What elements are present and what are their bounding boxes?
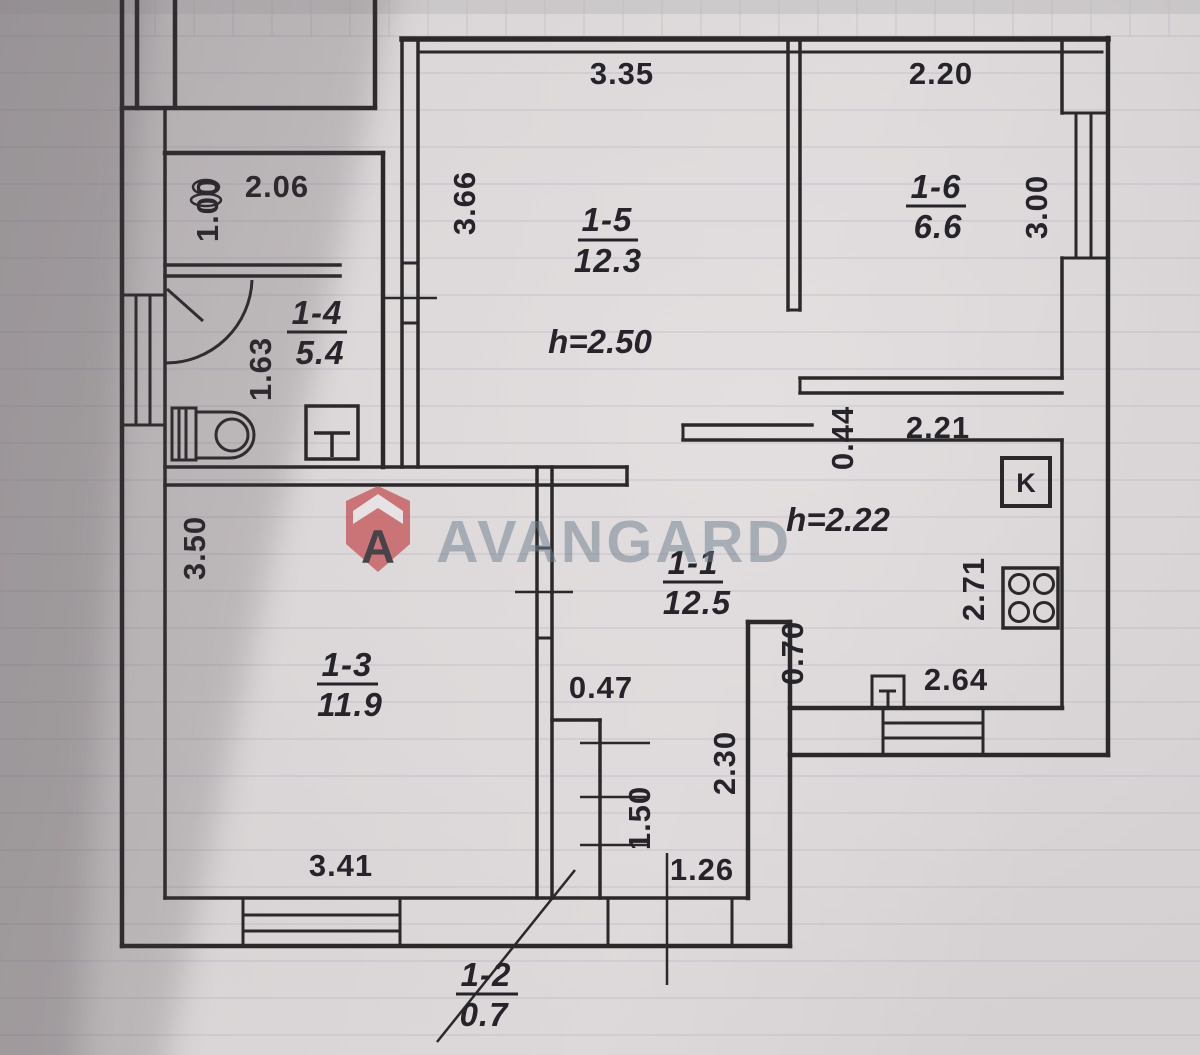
room11-area: 12.5 xyxy=(663,584,731,621)
dim-2-71: 2.71 xyxy=(956,557,991,621)
dim-0-47: 0.47 xyxy=(569,670,633,705)
dim-3-35: 3.35 xyxy=(590,56,654,91)
room16-id: 1-6 xyxy=(911,168,962,205)
height-living: h=2.50 xyxy=(548,323,652,360)
dim-3-41: 3.41 xyxy=(309,848,373,883)
floor-plan-photo: 3.35 2.20 2.06 2.21 2.64 0.47 3.41 1.26 … xyxy=(0,0,1200,1055)
kitchen-k-label: K xyxy=(1016,468,1036,498)
dim-2-20: 2.20 xyxy=(909,56,973,91)
dim-3-00: 3.00 xyxy=(1019,175,1054,239)
room13-area: 11.9 xyxy=(317,686,383,723)
room15-id: 1-5 xyxy=(582,201,633,238)
dim-1-50: 1.50 xyxy=(622,786,657,850)
room15-area: 12.3 xyxy=(574,242,642,279)
dim-2-64: 2.64 xyxy=(924,662,988,697)
room12-area: 0.7 xyxy=(460,996,510,1033)
height-kitchen: h=2.22 xyxy=(786,501,890,538)
dim-0-70: 0.70 xyxy=(775,621,810,685)
svg-text:A: A xyxy=(361,520,395,573)
floor-plan-drawing: 3.35 2.20 2.06 2.21 2.64 0.47 3.41 1.26 … xyxy=(0,0,1200,1055)
avangard-watermark-text: AVANGARD xyxy=(436,509,792,575)
dim-0-44: 0.44 xyxy=(825,406,860,470)
dim-3-66: 3.66 xyxy=(447,171,482,235)
room13-id: 1-3 xyxy=(322,646,373,683)
room16-area: 6.6 xyxy=(914,208,963,245)
dim-2-21: 2.21 xyxy=(906,410,970,445)
dim-1-26: 1.26 xyxy=(670,852,734,887)
dim-2-30: 2.30 xyxy=(707,731,742,795)
room12-id: 1-2 xyxy=(461,956,512,993)
